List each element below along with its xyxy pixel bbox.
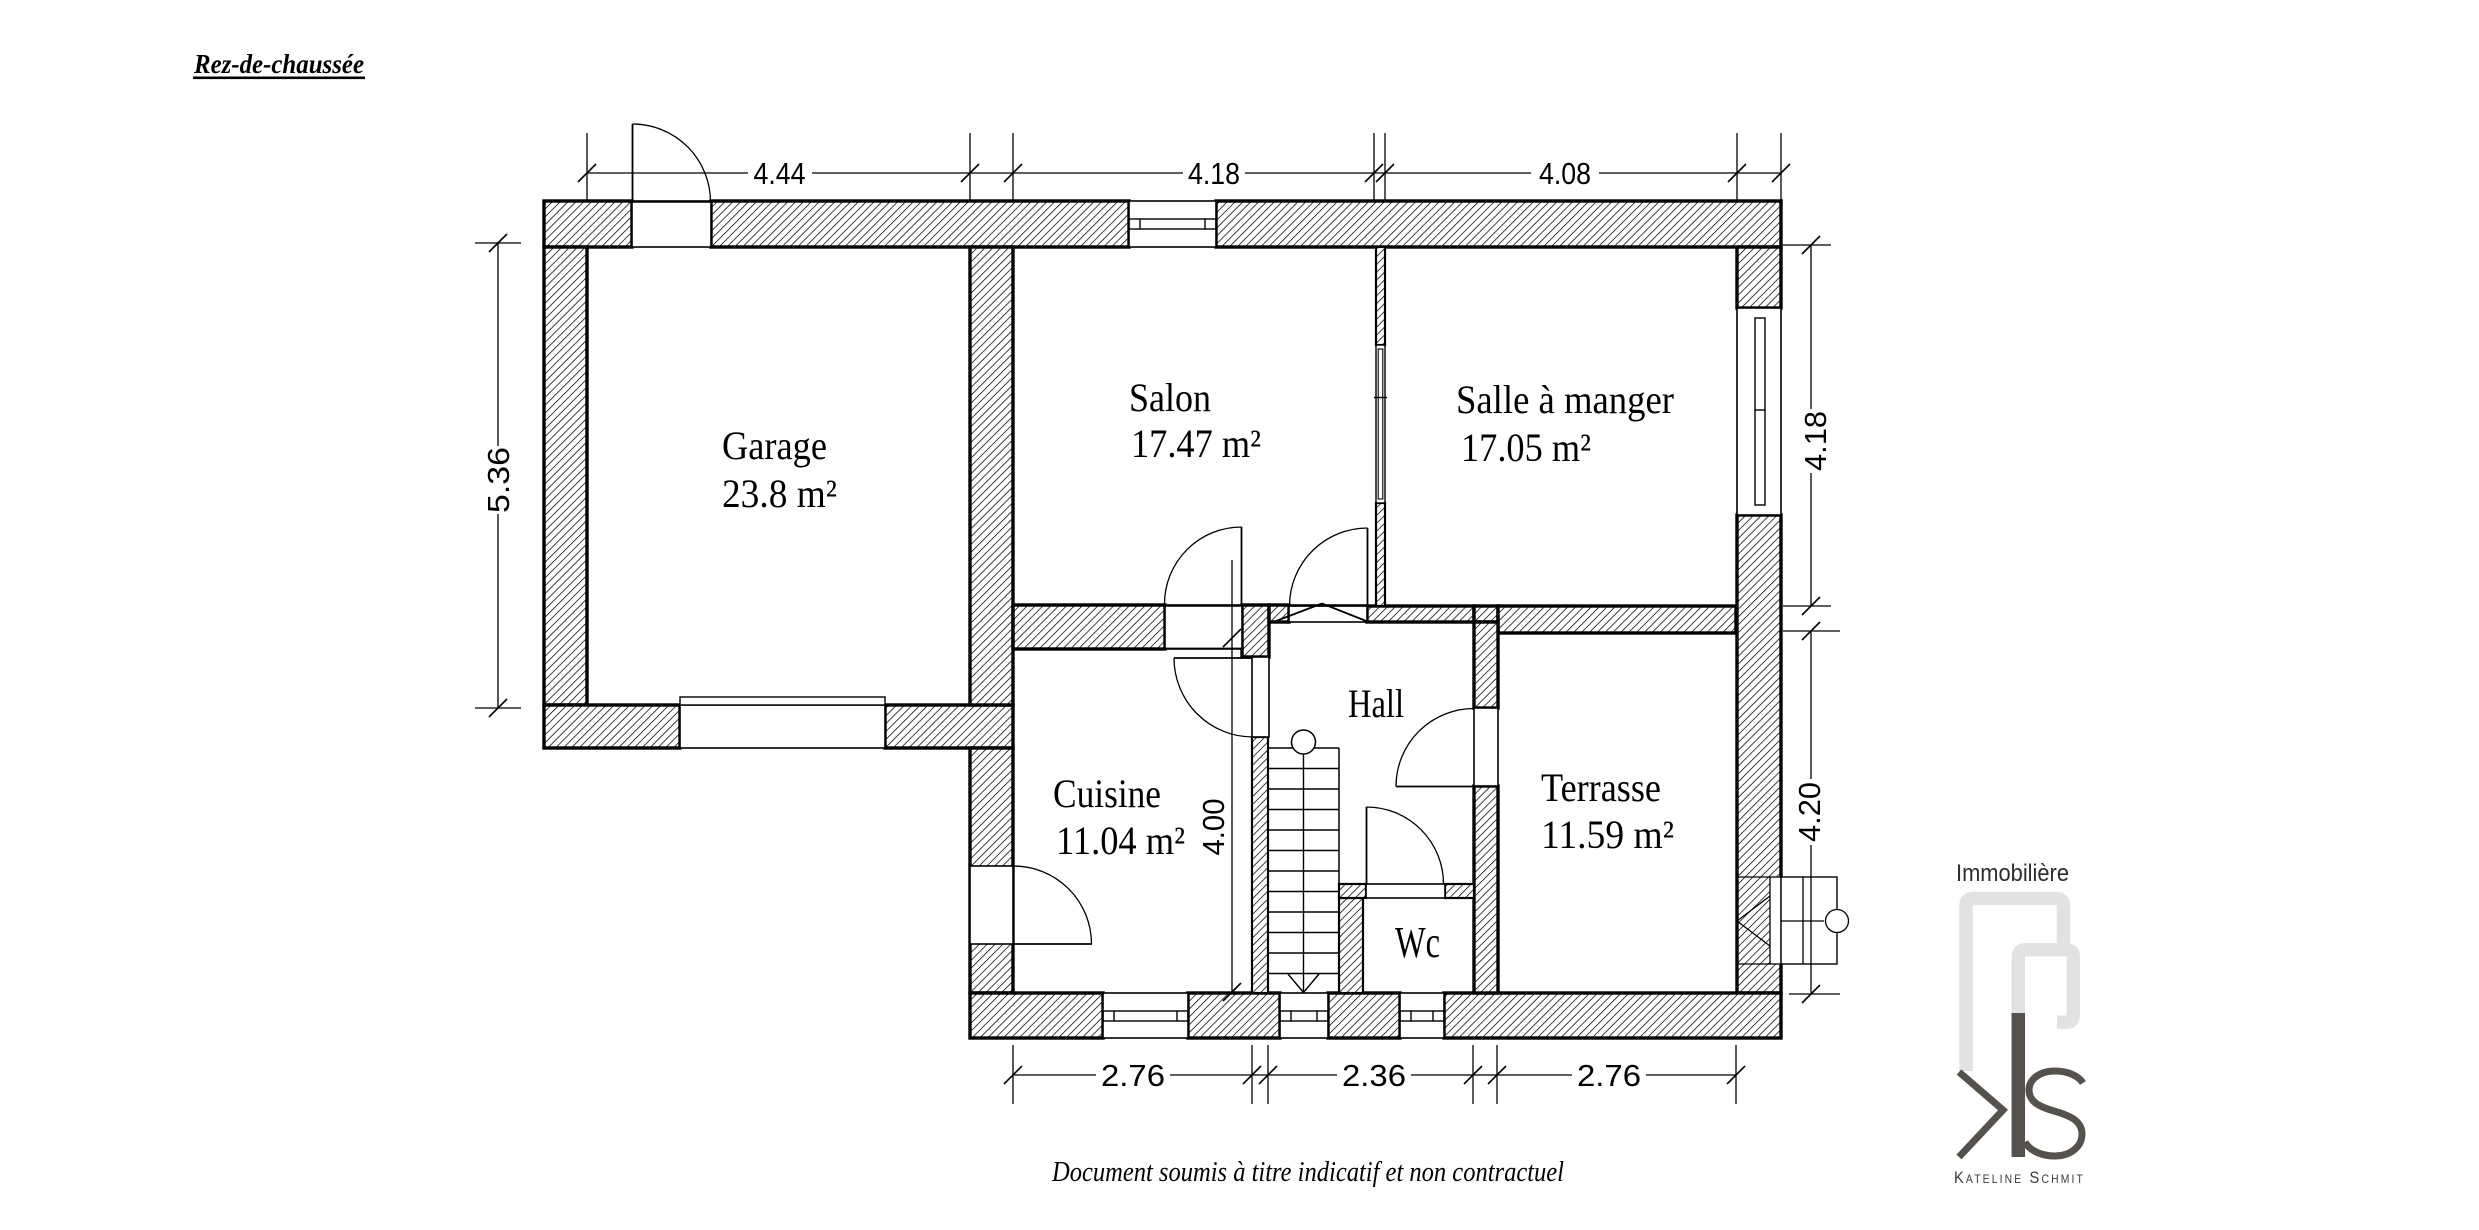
svg-text:Immobilière: Immobilière xyxy=(1956,860,2069,887)
svg-text:4.44: 4.44 xyxy=(754,156,806,191)
svg-text:Terrasse: Terrasse xyxy=(1541,765,1661,810)
svg-text:Wc: Wc xyxy=(1395,918,1440,967)
svg-text:4.18: 4.18 xyxy=(1798,411,1833,471)
svg-text:11.59 m²: 11.59 m² xyxy=(1541,812,1674,857)
svg-text:Garage: Garage xyxy=(722,423,827,468)
svg-text:Hall: Hall xyxy=(1348,681,1404,726)
svg-text:2.76: 2.76 xyxy=(1577,1058,1641,1093)
svg-text:11.04 m²: 11.04 m² xyxy=(1056,818,1185,863)
svg-text:4.20: 4.20 xyxy=(1792,782,1827,842)
svg-text:4.00: 4.00 xyxy=(1196,799,1231,856)
svg-text:Kateline Schmit: Kateline Schmit xyxy=(1954,1168,2085,1187)
svg-text:17.05 m²: 17.05 m² xyxy=(1461,425,1591,470)
svg-text:17.47 m²: 17.47 m² xyxy=(1131,421,1261,466)
svg-text:5.36: 5.36 xyxy=(481,447,516,513)
svg-text:4.08: 4.08 xyxy=(1539,156,1591,191)
svg-text:Salon: Salon xyxy=(1129,375,1211,420)
svg-text:2.36: 2.36 xyxy=(1342,1058,1406,1093)
svg-text:4.18: 4.18 xyxy=(1188,156,1240,191)
svg-text:Salle à manger: Salle à manger xyxy=(1456,377,1674,422)
svg-text:Document soumis à titre indica: Document soumis à titre indicatif et non… xyxy=(1051,1156,1564,1188)
svg-text:Rez-de-chaussée: Rez-de-chaussée xyxy=(193,49,364,79)
svg-text:23.8 m²: 23.8 m² xyxy=(722,471,837,516)
svg-text:2.76: 2.76 xyxy=(1101,1058,1165,1093)
svg-text:Cuisine: Cuisine xyxy=(1053,771,1161,816)
